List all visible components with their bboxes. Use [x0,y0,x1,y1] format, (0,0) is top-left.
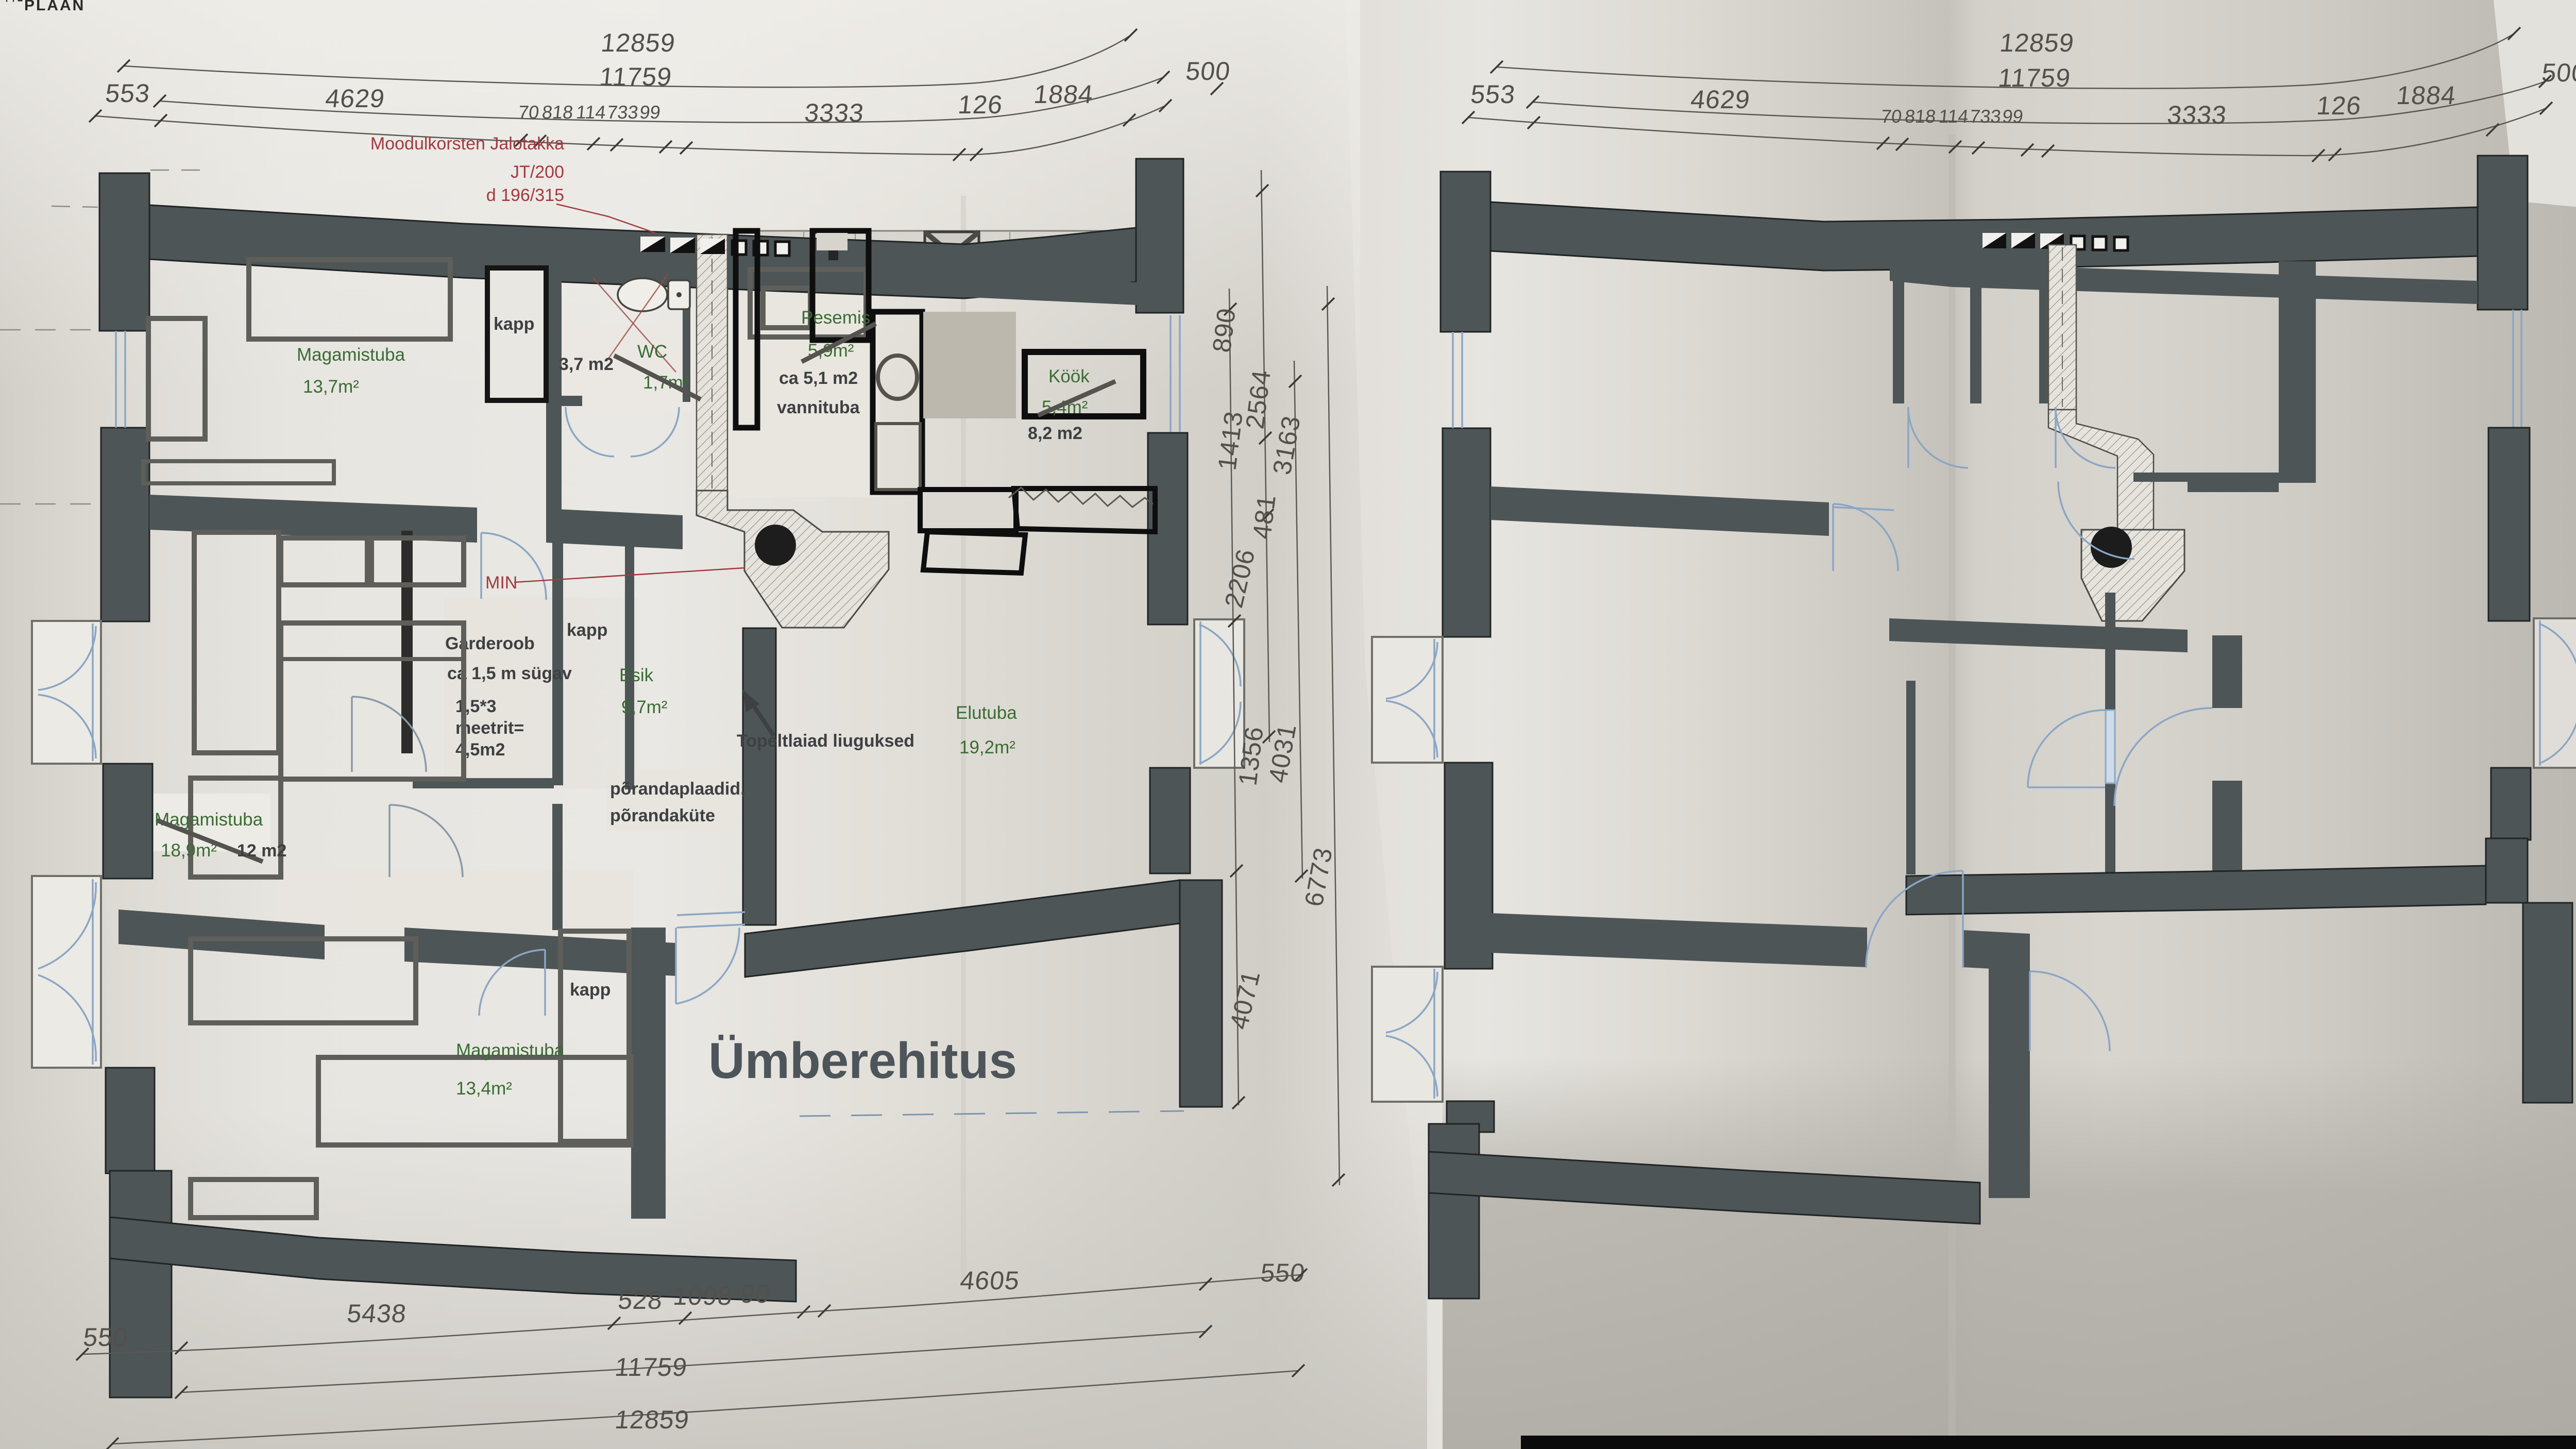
svg-text:ca 5,1 m2: ca 5,1 m2 [779,368,858,388]
svg-text:4629: 4629 [324,84,386,113]
svg-text:5,4m²: 5,4m² [1042,397,1088,417]
svg-text:Magamistuba: Magamistuba [297,345,405,365]
svg-text:11759: 11759 [598,62,673,91]
svg-text:13,7m²: 13,7m² [303,377,359,397]
svg-text:Pesemis: Pesemis [801,308,870,328]
svg-text:481: 481 [1247,493,1281,541]
svg-text:70 818 114 733 99: 70 818 114 733 99 [517,102,662,123]
svg-text:553: 553 [1469,80,1517,109]
svg-text:JT/200: JT/200 [511,162,564,182]
svg-text:3333: 3333 [803,98,866,127]
svg-text:vannituba: vannituba [777,398,860,417]
svg-text:kapp: kapp [567,620,607,640]
svg-text:Topeltlaiad liuguksed: Topeltlaiad liuguksed [737,731,914,751]
svg-text:põrandaküte: põrandaküte [610,806,715,825]
svg-text:12859: 12859 [614,1405,691,1434]
svg-text:126: 126 [2315,91,2363,120]
svg-text:528: 528 [617,1286,664,1315]
svg-text:MIN: MIN [485,573,517,593]
svg-text:põrandaplaadid,: põrandaplaadid, [610,779,745,799]
svg-text:Garderoob: Garderoob [445,634,535,653]
svg-text:WC: WC [637,342,667,362]
svg-text:11759: 11759 [614,1353,689,1381]
svg-text:13,4m²: 13,4m² [456,1079,512,1099]
svg-text:12859: 12859 [1998,28,2076,57]
svg-text:Ümberehitus: Ümberehitus [708,1032,1017,1089]
svg-text:70 818 114 733 99: 70 818 114 733 99 [1880,106,2024,127]
svg-text:5438: 5438 [346,1299,408,1328]
svg-text:890: 890 [1207,307,1241,355]
svg-text:Magamistuba: Magamistuba [456,1040,565,1060]
svg-text:12859: 12859 [600,28,677,57]
svg-text:1884: 1884 [2395,81,2458,110]
svg-text:Elutuba: Elutuba [956,703,1017,723]
svg-text:4605: 4605 [959,1266,1021,1295]
svg-text:4629: 4629 [1689,85,1752,114]
svg-text:kapp: kapp [494,314,534,334]
svg-text:126: 126 [957,90,1004,119]
svg-text:Esik: Esik [619,665,654,685]
svg-text:1884: 1884 [1032,80,1095,109]
svg-text:9,7m²: 9,7m² [621,697,667,717]
svg-text:550: 550 [1259,1258,1307,1287]
svg-text:kapp: kapp [570,980,611,1000]
svg-text:Köök: Köök [1048,366,1090,386]
svg-text:500: 500 [2540,58,2576,87]
svg-text:90: 90 [739,1279,772,1308]
svg-text:ˉˉˉ: ˉˉˉ [1637,0,1651,9]
svg-text:18,9m²: 18,9m² [161,840,217,861]
svg-text:550: 550 [82,1323,129,1352]
svg-text:3333: 3333 [2166,100,2228,129]
svg-text:Moodulkorsten Jalotakka: Moodulkorsten Jalotakka [370,134,564,154]
svg-text:553: 553 [104,79,151,108]
svg-text:1098: 1098 [672,1282,734,1310]
svg-text:11759: 11759 [1997,63,2072,92]
svg-text:ˈˈˉPLAAN: ˈˈˉPLAAN [4,0,85,14]
svg-text:3,7 m2: 3,7 m2 [559,355,614,374]
svg-text:19,2m²: 19,2m² [959,737,1015,757]
svg-text:d 196/315: d 196/315 [486,186,564,205]
svg-text:12 m2: 12 m2 [237,841,286,861]
svg-text:500: 500 [1184,57,1232,86]
svg-text:8,2 m2: 8,2 m2 [1028,424,1082,443]
svg-text:5,9m²: 5,9m² [808,341,854,361]
